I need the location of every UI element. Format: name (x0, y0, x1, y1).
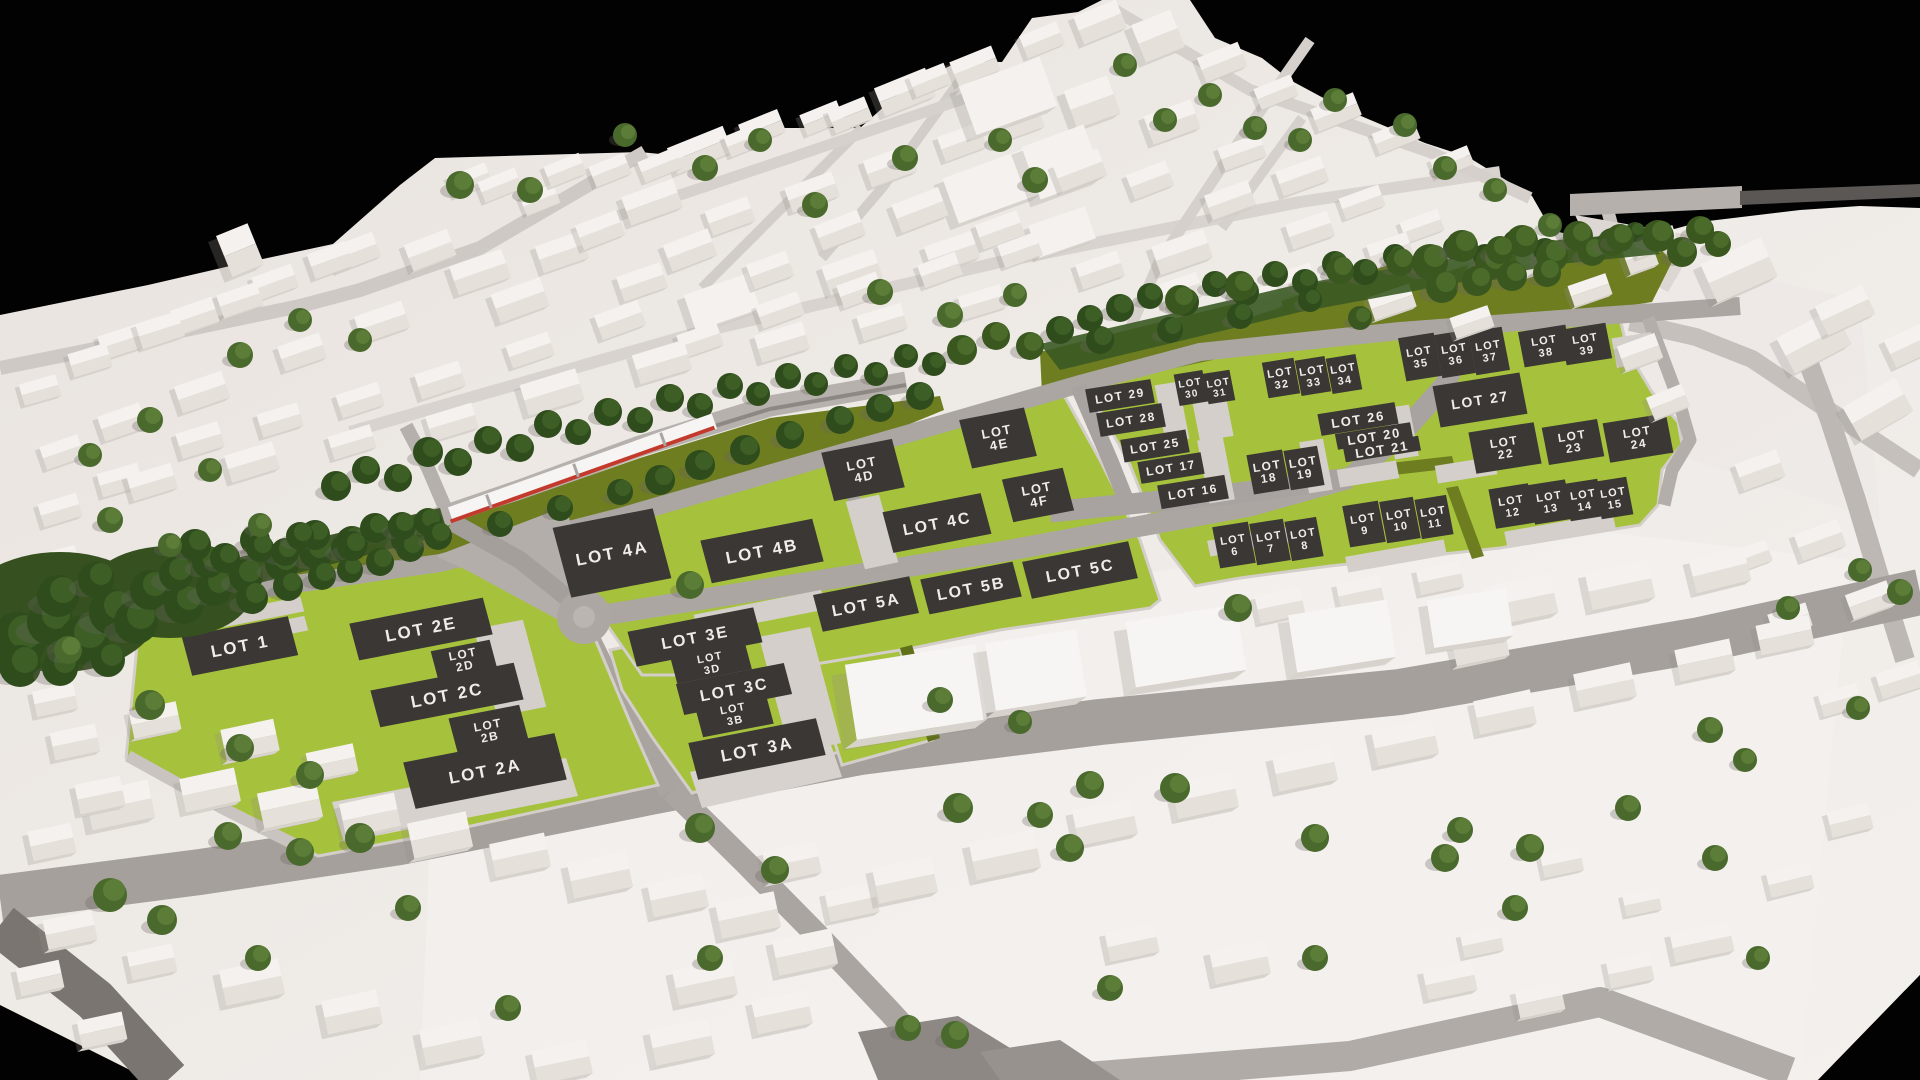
svg-text:31: 31 (1212, 387, 1227, 400)
svg-text:34: 34 (1337, 374, 1354, 388)
svg-text:10: 10 (1393, 520, 1410, 534)
svg-text:12: 12 (1505, 506, 1522, 520)
svg-text:30: 30 (1184, 388, 1199, 401)
svg-text:22: 22 (1497, 446, 1516, 462)
svg-text:39: 39 (1579, 344, 1596, 358)
svg-text:35: 35 (1413, 357, 1430, 371)
svg-text:36: 36 (1448, 354, 1465, 368)
svg-text:19: 19 (1296, 466, 1315, 482)
svg-text:15: 15 (1607, 498, 1624, 512)
svg-text:13: 13 (1543, 502, 1560, 516)
svg-text:18: 18 (1260, 470, 1279, 486)
svg-text:14: 14 (1577, 500, 1594, 514)
svg-text:24: 24 (1630, 436, 1649, 452)
svg-text:23: 23 (1565, 440, 1584, 456)
svg-text:33: 33 (1306, 376, 1323, 390)
svg-text:38: 38 (1538, 346, 1555, 360)
svg-text:32: 32 (1274, 378, 1291, 392)
svg-text:11: 11 (1427, 517, 1443, 531)
svg-text:37: 37 (1482, 351, 1499, 365)
